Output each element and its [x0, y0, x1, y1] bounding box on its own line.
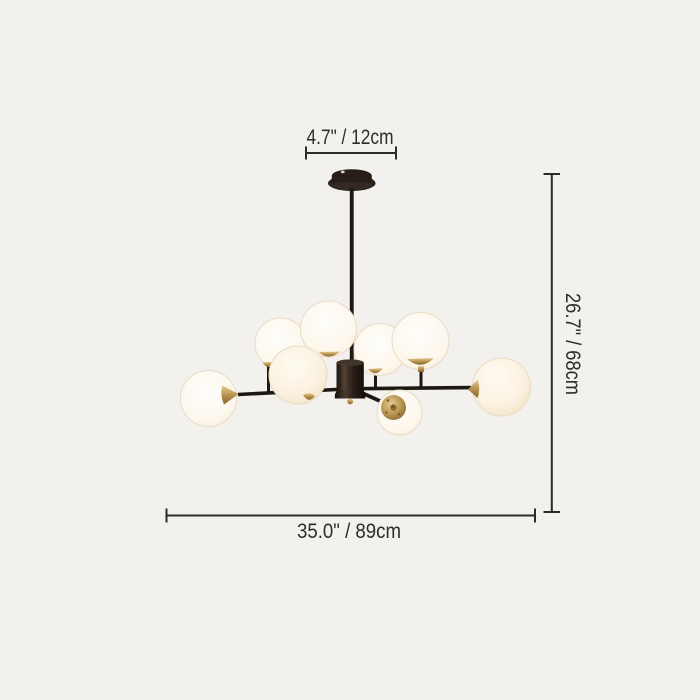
- svg-text:35.0" / 89cm: 35.0" / 89cm: [297, 520, 401, 543]
- svg-text:26.7" / 68cm: 26.7" / 68cm: [561, 293, 584, 395]
- svg-text:4.7" / 12cm: 4.7" / 12cm: [307, 126, 394, 149]
